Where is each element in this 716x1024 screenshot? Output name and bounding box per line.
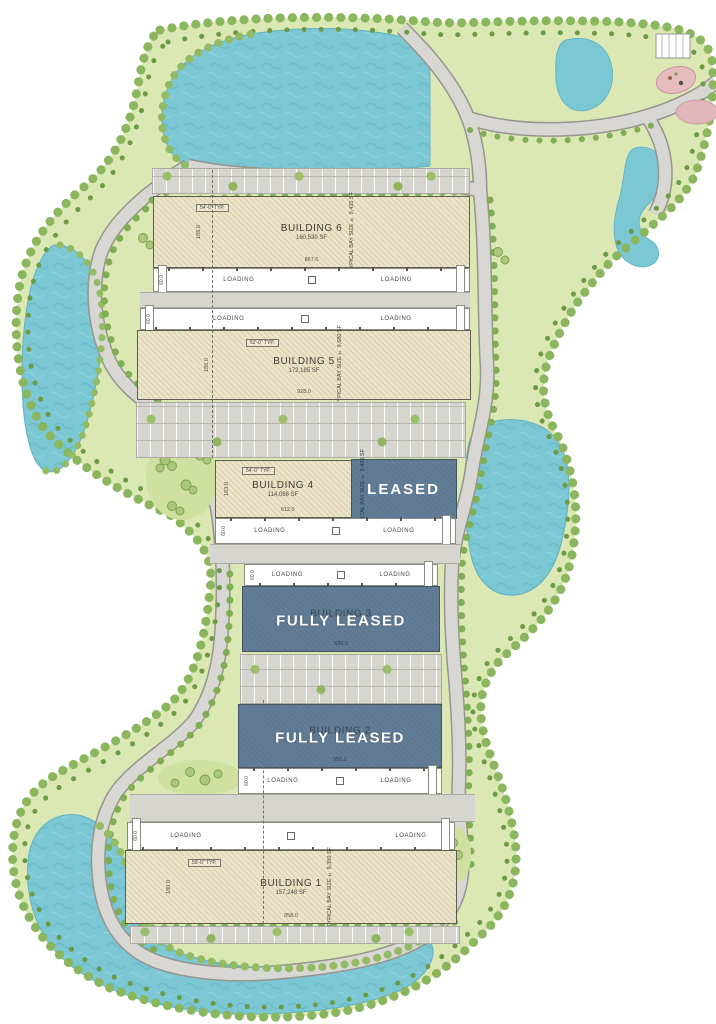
building-5-loading: LOADING LOADING 60.0 (140, 308, 470, 330)
width-dim: 536.0 (243, 641, 439, 647)
building-5-label: BUILDING 5 172,185 SF (138, 356, 470, 374)
building-3-footprint[interactable]: BUILDING 3 FULLY LEASED 536.0 (242, 586, 440, 652)
width-dim: 612.0 (216, 507, 359, 513)
building-4-loading: LOADING LOADING 60.0 (215, 518, 456, 544)
typ-bay-dim: 52'-0" TYP. (246, 339, 279, 347)
width-dim: 867.0 (154, 257, 469, 263)
truck-court-3 (130, 794, 475, 822)
building-5-footprint[interactable]: 52'-0" TYP. 185.0 BUILDING 5 172,185 SF … (137, 330, 471, 400)
building-4-footprint[interactable]: 54'-0" TYP. 163.0 BUILDING 4 114,088 SF … (215, 460, 456, 518)
truck-court-2 (210, 544, 460, 564)
building-6-label: BUILDING 6 160,530 SF (154, 223, 469, 241)
utility-box (332, 527, 340, 535)
utility-box (301, 315, 309, 323)
building-6-footprint[interactable]: 54'-0" TYP. 185.0 BUILDING 6 160,530 SF … (153, 196, 470, 268)
building-3-loading: LOADING LOADING 60.0 (244, 564, 438, 586)
building-1-loading: LOADING LOADING 60.0 (127, 822, 455, 850)
building-2-loading: LOADING LOADING 60.0 (238, 768, 442, 794)
dimension-line (212, 170, 213, 458)
building-2-label: BUILDING 2 FULLY LEASED (239, 726, 441, 747)
status-badge: FULLY LEASED (243, 613, 439, 630)
building-6-loading: LOADING LOADING 60.0 (153, 268, 470, 292)
building-1-label: BUILDING 1 157,248 SF (126, 878, 456, 896)
width-dim: 928.0 (138, 389, 470, 395)
width-dim: 556.0 (239, 757, 441, 763)
status-badge: LEASED (367, 481, 440, 498)
parking-bottom (130, 926, 460, 944)
building-2-footprint[interactable]: BUILDING 2 FULLY LEASED 556.0 (238, 704, 442, 768)
width-dim: 858.0 (126, 913, 456, 919)
typ-bay-dim: 50'-0" TYP. (188, 859, 221, 867)
dimension-line (263, 700, 264, 924)
amenity-lawn (676, 100, 716, 124)
building-4-leased-overlay[interactable]: TYPICAL BAY SIZE ± 9,435 SF LEASED (351, 459, 457, 518)
building-3-label: BUILDING 3 FULLY LEASED (243, 609, 439, 630)
utility-box (337, 571, 345, 579)
status-badge: FULLY LEASED (239, 730, 441, 747)
site-plan: 54'-0" TYP. 185.0 BUILDING 6 160,530 SF … (0, 0, 716, 1024)
truck-court-1 (140, 292, 470, 308)
building-4-label: BUILDING 4 114,088 SF (216, 480, 350, 498)
typ-bay-dim: 54'-0" TYP. (242, 467, 275, 475)
pond-top-right (556, 38, 613, 110)
building-1-footprint[interactable]: 50'-0" TYP. 180.0 BUILDING 1 157,248 SF … (125, 850, 457, 924)
utility-box (336, 777, 344, 785)
parking-mid-2 (240, 654, 442, 704)
utility-box (287, 832, 295, 840)
parking-mid-1 (136, 402, 466, 458)
utility-box (308, 276, 316, 284)
parking-top (152, 168, 470, 194)
